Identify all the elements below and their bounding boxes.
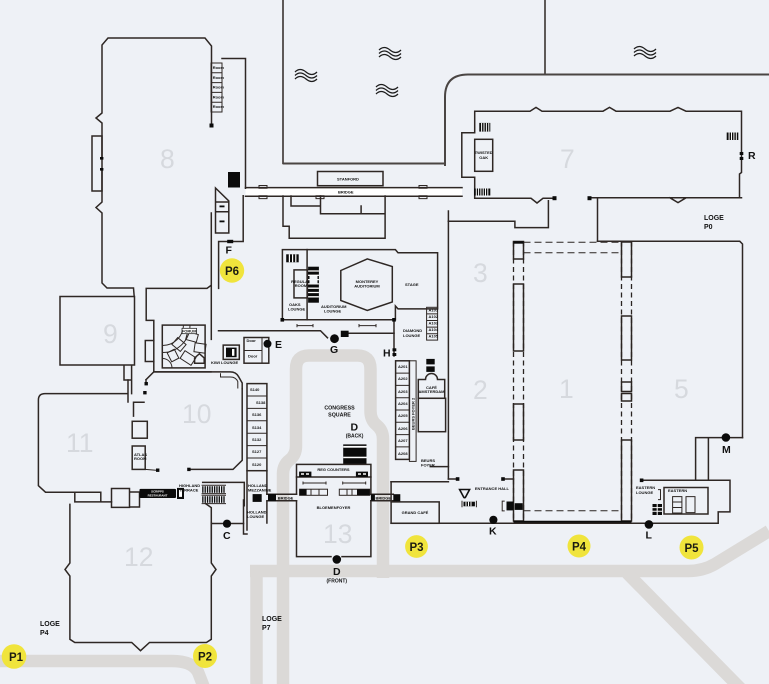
svg-text:LOUNGE: LOUNGE [247, 514, 264, 519]
svg-text:A103: A103 [429, 321, 439, 326]
svg-text:A101: A101 [429, 308, 439, 313]
svg-text:A105: A105 [429, 334, 439, 339]
svg-text:FORUM: FORUM [182, 328, 197, 333]
svg-text:LOGE: LOGE [704, 215, 724, 222]
svg-text:A201: A201 [398, 364, 408, 369]
svg-text:BRIDGE: BRIDGE [376, 495, 392, 500]
svg-text:LOUNGE: LOUNGE [636, 490, 653, 495]
svg-text:P0: P0 [704, 224, 713, 231]
svg-text:D: D [333, 566, 341, 578]
svg-text:3: 3 [473, 258, 488, 288]
svg-text:1: 1 [559, 374, 574, 404]
svg-text:LOUNGE: LOUNGE [288, 307, 305, 312]
svg-text:L: L [646, 530, 653, 542]
svg-text:E: E [275, 339, 282, 351]
svg-text:AUDITORIUM: AUDITORIUM [354, 284, 380, 289]
svg-text:A205: A205 [398, 413, 408, 418]
svg-text:P5: P5 [684, 543, 699, 555]
svg-text:STANFORD: STANFORD [337, 177, 359, 182]
svg-text:A202: A202 [398, 376, 408, 381]
svg-text:F: F [226, 245, 233, 257]
svg-text:A207: A207 [398, 438, 408, 443]
svg-text:7: 7 [560, 144, 575, 174]
svg-text:BRIDGE: BRIDGE [338, 189, 354, 194]
svg-text:S136: S136 [252, 412, 262, 417]
svg-text:ENTRANCE HALL: ENTRANCE HALL [475, 486, 510, 491]
svg-text:GRAND CAFÉ: GRAND CAFÉ [402, 510, 429, 515]
svg-text:P4: P4 [572, 542, 587, 554]
svg-text:OAK: OAK [479, 155, 488, 160]
svg-text:8: 8 [160, 144, 175, 174]
svg-text:Room: Room [213, 75, 225, 80]
svg-text:EASTERN: EASTERN [668, 488, 687, 493]
svg-text:12: 12 [124, 542, 153, 572]
svg-text:S120: S120 [252, 462, 262, 467]
svg-text:TERRACE: TERRACE [179, 488, 199, 493]
svg-text:11: 11 [66, 428, 94, 458]
svg-text:S127: S127 [252, 449, 262, 454]
svg-text:S134: S134 [252, 425, 262, 430]
svg-text:S132: S132 [252, 437, 262, 442]
svg-text:BRIDGE: BRIDGE [278, 495, 294, 500]
svg-text:P1: P1 [9, 652, 24, 664]
svg-text:C: C [223, 530, 231, 542]
svg-text:R: R [748, 150, 756, 162]
svg-text:FOYER: FOYER [421, 463, 435, 468]
svg-text:S140: S140 [250, 387, 260, 392]
svg-text:ROOM: ROOM [295, 283, 308, 288]
svg-text:ROOM: ROOM [134, 456, 147, 461]
svg-text:D: D [351, 422, 359, 434]
svg-text:BLOEMENFOYER: BLOEMENFOYER [317, 505, 351, 510]
svg-text:Room: Room [213, 65, 225, 70]
svg-text:STAGE: STAGE [405, 282, 419, 287]
svg-text:K: K [489, 526, 497, 538]
svg-text:SQUARE: SQUARE [328, 413, 351, 419]
svg-text:10: 10 [182, 399, 211, 429]
svg-text:LOUNGE: LOUNGE [403, 333, 420, 338]
svg-text:A208: A208 [398, 451, 408, 456]
svg-text:S138: S138 [256, 400, 266, 405]
svg-text:5: 5 [674, 374, 689, 404]
svg-text:G: G [330, 344, 338, 356]
svg-text:CONGRESS: CONGRESS [324, 406, 355, 412]
svg-text:A102: A102 [429, 314, 439, 319]
svg-text:M: M [722, 444, 731, 456]
svg-text:Room: Room [213, 104, 225, 109]
svg-text:A204: A204 [398, 401, 408, 406]
svg-text:REG COUNTERS: REG COUNTERS [317, 467, 350, 472]
svg-text:LOGE: LOGE [40, 621, 60, 628]
svg-text:P7: P7 [262, 625, 271, 632]
svg-text:A203: A203 [398, 389, 408, 394]
svg-text:H: H [383, 348, 391, 360]
svg-text:P2: P2 [198, 652, 212, 664]
svg-text:9: 9 [103, 319, 118, 349]
svg-text:13: 13 [323, 519, 352, 549]
svg-text:A104: A104 [429, 327, 439, 332]
svg-text:BEURS FOYER 2: BEURS FOYER 2 [410, 397, 415, 430]
svg-text:P3: P3 [409, 542, 423, 554]
svg-text:(FRONT): (FRONT) [327, 579, 348, 585]
svg-text:(BACK): (BACK) [346, 434, 364, 440]
svg-text:A206: A206 [398, 426, 408, 431]
svg-text:AMSTERDAM: AMSTERDAM [419, 389, 446, 394]
svg-text:Door: Door [247, 338, 257, 343]
svg-text:KIWI LOUNGE: KIWI LOUNGE [211, 360, 238, 365]
svg-text:MEZZANINE: MEZZANINE [248, 488, 272, 493]
svg-text:RESTAURANT: RESTAURANT [148, 493, 168, 497]
svg-text:P6: P6 [225, 266, 239, 278]
svg-text:Room: Room [213, 85, 225, 90]
svg-text:2: 2 [473, 375, 488, 405]
svg-text:LOUNGE: LOUNGE [324, 309, 341, 314]
svg-text:LOGE: LOGE [262, 616, 282, 623]
svg-text:Door: Door [248, 354, 258, 359]
svg-text:P4: P4 [40, 630, 49, 637]
svg-text:Room: Room [213, 94, 225, 99]
